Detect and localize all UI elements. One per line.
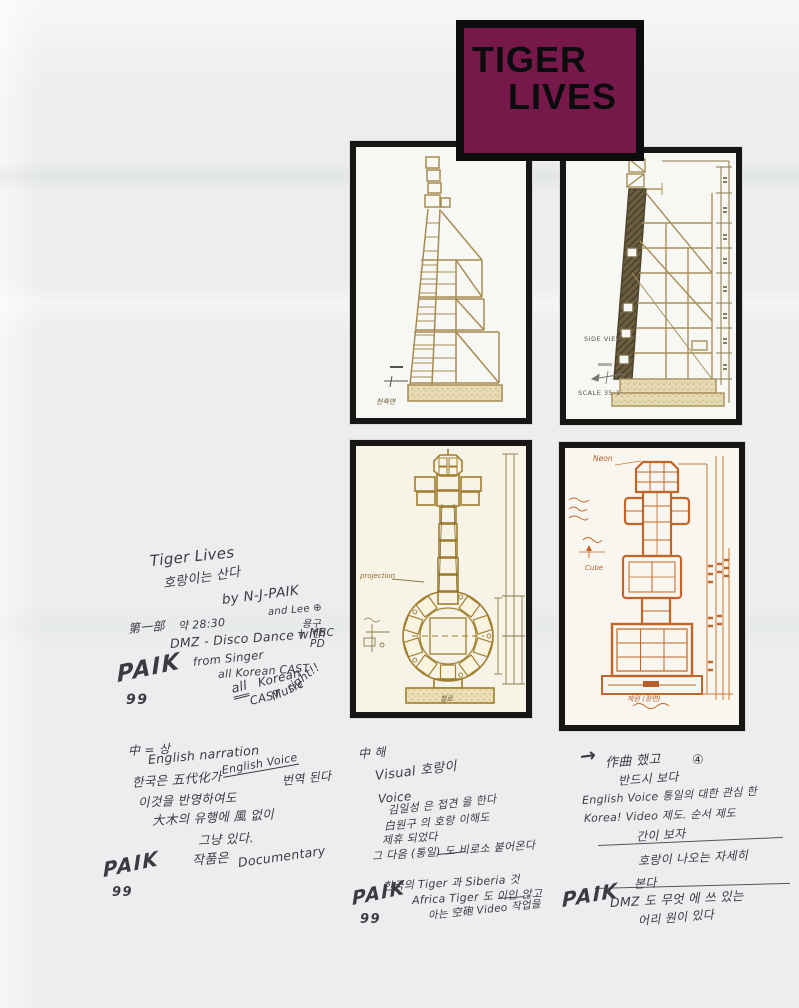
signature-year: 99 [126,692,148,708]
handwritten-note: DMZ 도 무엇 에 쓰 있는 [610,885,745,911]
side-structure [612,159,724,406]
cube-label: Cube [585,564,603,572]
tower-structure [408,157,502,401]
drawing-frame-front-view: 전측면 [350,141,532,424]
signature-year: 99 [112,885,133,900]
handwritten-note: 作曲 했고 [604,748,661,771]
handwritten-note: 작품은 [191,847,229,869]
circled-number: ④ [692,753,704,768]
handwritten-note: all [230,678,250,699]
neon-label: Neon [593,454,613,463]
drawing-frame-side-view: SIDE VIEW SCALE 35:1 [560,147,742,425]
handwritten-note: 호랑이 나오는 자세히 [638,846,749,869]
handwritten-note: 第一部 [127,617,165,637]
note-cluster-narration: 中 = 상 English narration 한국은 五代化가 English… [100,740,385,915]
totem-drawing [565,448,739,725]
drawing-caption: 제원 (정면) [627,694,660,704]
note-cluster-visual: 中 해 Visual 호랑이 Voice 김일성 은 접견 을 한다 白원구 의… [350,740,585,940]
tower-front-drawing [356,147,526,418]
note-cluster-title: Tiger Lives 호랑이는 산다 by N-J-PAIK and Lee … [115,542,355,727]
handwritten-note: 반드시 보다 [617,768,679,789]
handwritten-note: 번역 된다 [281,767,332,789]
arrow-icon: → [578,744,597,768]
cello-body [403,449,494,703]
banner-title-line2: LIVES [508,79,636,114]
side-view-label: SIDE VIEW [584,335,623,343]
totem-structure [602,462,702,694]
dimension-lines [662,161,732,403]
dimension-marks [384,367,408,387]
signature-year: 99 [360,912,381,927]
handwritten-note: 그냥 있다. [198,827,255,849]
tower-side-drawing [566,153,736,419]
projection-label: projection [360,572,395,580]
illegible-annotation [364,618,380,622]
drawing-caption: 전측면 [376,397,395,407]
drawing-frame-totem: Neon Cube 제원 (정면) [559,442,745,731]
handwritten-note: 약 28:30 [177,614,226,634]
scale-label: SCALE 35:1 [578,389,621,397]
drawing-caption: 첼로 [440,694,453,704]
handwritten-note: 中 해 [357,743,386,762]
note-cluster-plan: → 作曲 했고 ④ 반드시 보다 English Voice 통일의 대한 관심… [560,742,799,942]
tiger-lives-banner: TIGER LIVES [456,20,644,161]
divider-stroke [598,837,783,846]
drawing-frame-cello: projection 첼로 [350,440,532,718]
paik-signature: PAIK [103,846,160,882]
dimension-lines [364,454,525,684]
banner-title-line1: TIGER [472,42,636,77]
handwritten-note: Visual 호랑이 [374,755,458,784]
handwritten-note: Documentary [237,843,326,870]
handwritten-note: 한국은 五代化가 [131,766,222,791]
paik-signature: PAIK [352,876,406,910]
handwritten-note: Korea! Video 제도. 순서 제도 [584,805,736,826]
paik-signature: PAIK [117,648,181,688]
scanned-sketchbook-page: 전측면 [0,0,799,1008]
